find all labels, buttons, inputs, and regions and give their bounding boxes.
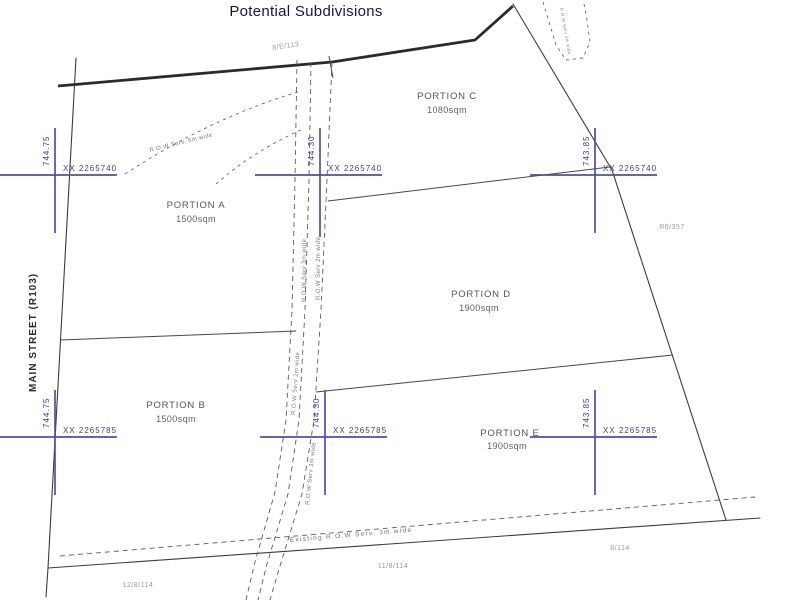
portion-area: 1900sqm [459,303,499,313]
grid-cross-bottom-right: XX 2265785 743.85 [530,390,657,495]
grid-cross-top-middle: XX 2265740 744.30 [255,128,382,237]
portion-name: PORTION D [451,289,511,300]
cross-level-label: 744.30 [312,398,321,428]
portion-area: 1080sqm [427,105,467,115]
portion-area: 1500sqm [176,214,216,224]
divider-a-b [60,331,296,340]
outer-boundary [46,4,760,597]
row-label-pocket: R.O.W Serv 3m wide [559,7,572,55]
parcel-ref-right: R6/357 [659,224,685,231]
grid-cross-top-left: XX 2265740 744.75 [0,128,117,233]
internal-dividers [60,56,673,392]
divider-d-e [316,355,673,392]
portion-area: 1500sqm [156,414,196,424]
road-splay-curve-lower [216,130,301,184]
road-edge-right [270,62,332,600]
grid-cross-bottom-left: XX 2265785 744.75 [0,390,117,495]
cross-level-label: 744.30 [307,136,316,166]
portion-d-label: PORTION D 1900sqm [451,289,511,313]
portion-name: PORTION C [417,91,477,102]
cross-easting-label: XX 2265740 [603,164,657,173]
portion-a-label: PORTION A 1500sqm [167,200,226,224]
portion-name: PORTION E [480,428,539,439]
portion-c-label: PORTION C 1080sqm [417,91,477,115]
existing-row-label: Existing R.O.W Serv. 3m wide [290,527,413,544]
cross-easting-label: XX 2265740 [328,164,382,173]
cross-easting-label: XX 2265785 [603,426,657,435]
cross-easting-label: XX 2265740 [63,164,117,173]
main-street-label: MAIN STREET (R103) [28,273,39,392]
cross-level-label: 743.85 [582,398,591,428]
cross-easting-label: XX 2265785 [333,426,387,435]
portion-name: PORTION A [167,200,226,211]
plan-title: Potential Subdivisions [229,3,382,20]
right-boundary-line [513,4,726,520]
plan-canvas: XX 2265740 744.75 XX 2265740 744.30 XX 2… [0,0,800,600]
row-label-road-4: R.O.W Serv 3m wide [305,441,318,505]
cross-level-label: 744.75 [42,398,51,428]
access-road [122,60,332,600]
road-junction-tick [329,56,333,78]
subdivision-plan: XX 2265740 744.75 XX 2265740 744.30 XX 2… [0,0,800,600]
portion-area: 1900sqm [487,441,527,451]
cross-level-label: 744.75 [42,136,51,166]
parcel-ref-bottom-left: 12/8/114 [123,582,154,589]
parcel-ref-bottom-right: 8/114 [610,545,630,552]
parcel-ref-bottom-middle: 11/8/114 [378,563,408,570]
row-label-road-2: R.O.W Serv 2m wide [316,237,322,300]
row-label-road-1: R.O.W Serv 3m wide [302,239,308,302]
parcel-ref-top: 8/E/113 [272,41,300,52]
bottom-boundary-line [48,518,760,568]
row-label-top-curve: R.O.W Serv. 6m wide [149,132,214,154]
road-edge-left [246,60,297,600]
grid-cross-bottom-middle: XX 2265785 744.30 [260,390,387,495]
cross-level-label: 743.85 [582,136,591,166]
grid-cross-top-right: XX 2265740 743.85 [530,128,657,233]
portion-name: PORTION B [146,400,205,411]
cross-easting-label: XX 2265785 [63,426,117,435]
portion-b-label: PORTION B 1500sqm [146,400,205,424]
portion-e-label: PORTION E 1900sqm [480,428,539,451]
